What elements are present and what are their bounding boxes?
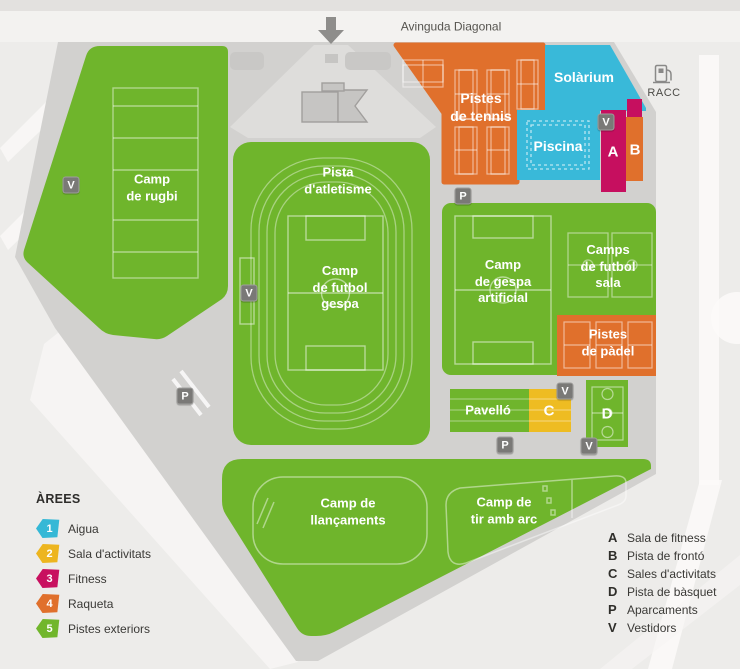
key-label: Sala de fitness [627, 531, 706, 545]
solarium-label: Solàrium [554, 69, 614, 87]
key-letter: V [608, 620, 623, 635]
racc-label: RACC [647, 86, 680, 100]
legend-key-b: B Pista de frontó [608, 549, 716, 562]
legend-item-label: Raqueta [68, 597, 113, 611]
legend-item-fitness: 3 Fitness [36, 569, 151, 588]
key-label: Pista de bàsquet [627, 585, 716, 599]
vestidors-badge: V [241, 285, 258, 302]
athletics-label: Pista d'atletisme [304, 164, 371, 197]
padel-label: Pistes de pàdel [582, 326, 635, 359]
legend-item-label: Pistes exteriors [68, 622, 150, 636]
key-label: Vestidors [627, 621, 676, 635]
area-3-badge: 3 [36, 569, 60, 588]
legend-item-label: Sala d'activitats [68, 547, 151, 561]
building-a-label: A [608, 144, 619, 161]
vestidors-badge: V [63, 177, 80, 194]
pool-label: Piscina [533, 138, 582, 156]
street-label: Avinguda Diagonal [401, 19, 502, 34]
key-label: Pista de frontó [627, 549, 704, 563]
throwing-label: Camp de llançaments [310, 495, 385, 528]
parking-badge: P [497, 437, 514, 454]
key-letter: C [608, 566, 623, 581]
areas-legend: ÀREES 1 Aigua 2 Sala d'activitats 3 Fitn… [36, 492, 151, 638]
artificial-turf-label: Camp de gespa artificial [475, 257, 531, 307]
area-4-badge: 4 [36, 594, 60, 613]
key-letter: A [608, 530, 623, 545]
vestidors-badge: V [598, 114, 615, 131]
legend-key-c: C Sales d'activitats [608, 567, 716, 580]
archery-label: Camp de tir amb arc [471, 494, 537, 527]
facility-map: Avinguda Diagonal RACC Camp de rugbi Pis… [0, 0, 740, 669]
futsal-label: Camps de futbol sala [581, 242, 636, 292]
vestidors-badge: V [557, 383, 574, 400]
keys-legend: A Sala de fitness B Pista de frontó C Sa… [608, 531, 716, 634]
building-c-label: C [544, 403, 555, 420]
building-d-label: D [602, 406, 613, 423]
rugby-label: Camp de rugbi [126, 171, 177, 204]
key-letter: D [608, 584, 623, 599]
area-5-badge: 5 [36, 619, 60, 638]
legend-item-label: Fitness [68, 572, 107, 586]
legend-item-sala-activitats: 2 Sala d'activitats [36, 544, 151, 563]
legend-key-a: A Sala de fitness [608, 531, 716, 544]
key-label: Aparcaments [627, 603, 698, 617]
football-grass-label: Camp de futbol gespa [313, 263, 368, 313]
key-label: Sales d'activitats [627, 567, 716, 581]
pavilion-label: Pavelló [465, 403, 511, 420]
labels-overlay: Avinguda Diagonal RACC Camp de rugbi Pis… [0, 0, 740, 669]
parking-badge: P [177, 388, 194, 405]
vestidors-badge: V [581, 438, 598, 455]
parking-badge: P [455, 188, 472, 205]
legend-key-d: D Pista de bàsquet [608, 585, 716, 598]
legend-item-aigua: 1 Aigua [36, 519, 151, 538]
legend-key-p: P Aparcaments [608, 603, 716, 616]
legend-item-label: Aigua [68, 522, 99, 536]
key-letter: B [608, 548, 623, 563]
legend-item-pistes-exteriors: 5 Pistes exteriors [36, 619, 151, 638]
building-b-label: B [630, 142, 641, 159]
legend-item-raqueta: 4 Raqueta [36, 594, 151, 613]
legend-key-v: V Vestidors [608, 621, 716, 634]
key-letter: P [608, 602, 623, 617]
tennis-label: Pistes de tennis [450, 90, 511, 126]
area-2-badge: 2 [36, 544, 60, 563]
area-1-badge: 1 [36, 519, 60, 538]
areas-legend-title: ÀREES [36, 492, 151, 506]
